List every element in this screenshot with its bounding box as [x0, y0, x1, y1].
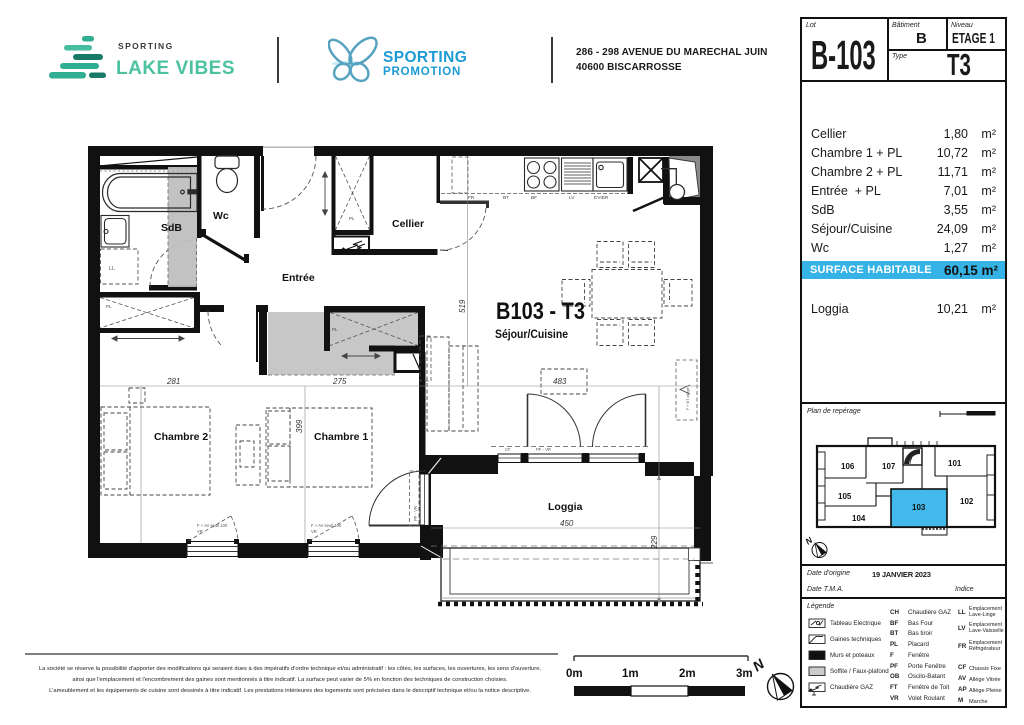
svg-text:LV: LV: [569, 195, 575, 201]
svg-text:SdB: SdB: [161, 222, 182, 234]
svg-text:3m: 3m: [736, 668, 753, 680]
svg-text:LL: LL: [109, 266, 115, 272]
svg-text:PF - VR: PF - VR: [536, 447, 551, 452]
svg-text:229: 229: [650, 535, 659, 550]
svg-text:107: 107: [882, 462, 896, 471]
svg-text:399: 399: [295, 419, 304, 433]
svg-text:2m: 2m: [679, 668, 696, 680]
svg-text:102: 102: [960, 497, 974, 506]
svg-text:Chambre 2: Chambre 2: [154, 431, 208, 443]
svg-text:F + AV seuil 100: F + AV seuil 100: [311, 523, 342, 528]
svg-text:104: 104: [852, 514, 866, 523]
svg-text:Wc: Wc: [213, 210, 229, 222]
svg-text:Entrée: Entrée: [282, 272, 315, 284]
svg-text:CF: CF: [505, 447, 511, 452]
svg-text:FR: FR: [468, 195, 475, 201]
svg-text:101: 101: [948, 459, 962, 468]
svg-text:Chambre 1: Chambre 1: [314, 431, 368, 443]
svg-text:EVIER: EVIER: [594, 195, 609, 201]
svg-text:105: 105: [838, 492, 852, 501]
svg-text:106: 106: [841, 462, 855, 471]
svg-text:F + AV seuil 100: F + AV seuil 100: [197, 523, 228, 528]
svg-text:VR: VR: [311, 529, 317, 534]
svg-text:483: 483: [553, 377, 567, 386]
svg-text:Cellier: Cellier: [392, 218, 424, 230]
svg-text:PF - VR: PF - VR: [413, 506, 418, 521]
svg-text:BF: BF: [531, 195, 537, 201]
svg-text:VR: VR: [197, 529, 203, 534]
svg-text:PL: PL: [332, 327, 338, 332]
svg-text:BT: BT: [503, 195, 509, 201]
svg-text:N: N: [803, 534, 814, 546]
svg-text:B103 - T3: B103 - T3: [496, 298, 585, 325]
svg-text:519: 519: [458, 299, 467, 313]
svg-text:281: 281: [166, 377, 180, 386]
svg-text:275: 275: [332, 377, 347, 386]
svg-text:Séjour/Cuisine: Séjour/Cuisine: [495, 327, 568, 341]
svg-text:PL: PL: [349, 216, 355, 221]
svg-text:1m: 1m: [622, 668, 639, 680]
svg-text:F + BT allège: F + BT allège: [686, 387, 690, 410]
svg-text:450: 450: [560, 519, 574, 528]
svg-text:PL: PL: [106, 304, 112, 309]
svg-text:Loggia: Loggia: [548, 501, 583, 513]
svg-text:103: 103: [912, 503, 926, 512]
